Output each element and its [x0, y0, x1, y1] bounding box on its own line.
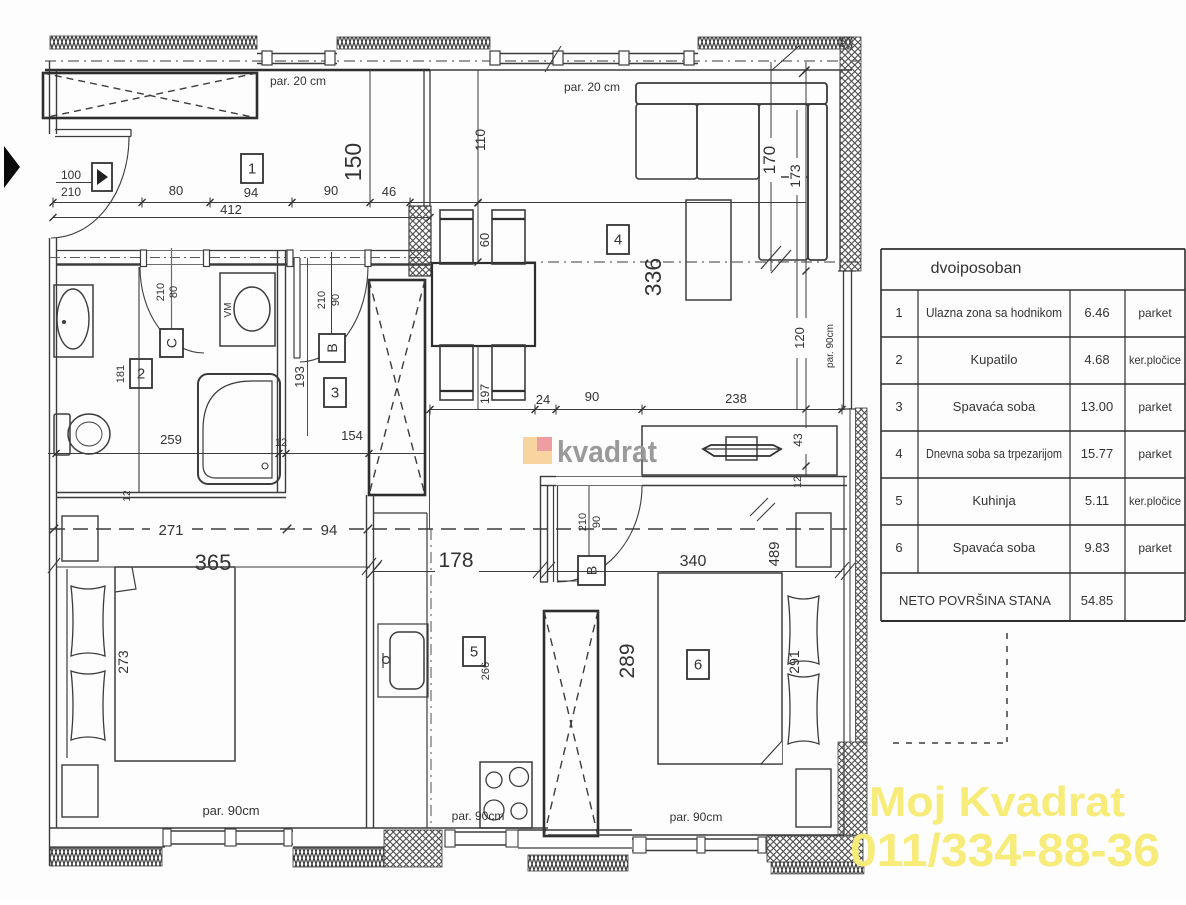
svg-text:B: B	[584, 566, 600, 575]
svg-text:Spavaća soba: Spavaća soba	[953, 399, 1036, 414]
svg-text:par. 90cm: par. 90cm	[452, 809, 505, 823]
svg-text:VM: VM	[223, 303, 234, 318]
svg-text:340: 340	[680, 553, 707, 570]
svg-text:kvadrat: kvadrat	[557, 434, 657, 469]
svg-text:par. 90cm: par. 90cm	[202, 803, 259, 818]
svg-text:94: 94	[244, 185, 258, 200]
svg-text:336: 336	[640, 258, 666, 296]
svg-text:Kupatilo: Kupatilo	[971, 352, 1018, 367]
svg-text:par. 90cm: par. 90cm	[825, 324, 836, 368]
svg-text:5: 5	[895, 493, 902, 508]
svg-text:9.83: 9.83	[1084, 540, 1109, 555]
svg-text:210: 210	[577, 513, 589, 531]
svg-text:15.77: 15.77	[1081, 446, 1114, 461]
svg-text:12: 12	[275, 437, 287, 449]
svg-text:289: 289	[616, 643, 639, 678]
svg-text:90: 90	[591, 516, 603, 528]
svg-text:4: 4	[614, 232, 622, 249]
svg-text:parket: parket	[1138, 541, 1172, 555]
svg-text:489: 489	[766, 541, 783, 566]
svg-text:011/334-88-36: 011/334-88-36	[850, 824, 1160, 876]
svg-text:5.11: 5.11	[1085, 493, 1109, 508]
svg-text:173: 173	[787, 164, 803, 188]
svg-text:90: 90	[324, 183, 338, 198]
svg-text:210: 210	[61, 185, 81, 199]
svg-text:100: 100	[61, 168, 81, 182]
svg-text:5: 5	[470, 644, 478, 661]
svg-text:parket: parket	[1138, 447, 1172, 461]
svg-text:43: 43	[791, 433, 805, 447]
svg-text:80: 80	[169, 183, 183, 198]
svg-text:parket: parket	[1138, 306, 1172, 320]
svg-text:6: 6	[694, 657, 702, 674]
svg-text:412: 412	[220, 202, 242, 217]
svg-text:dvoiposoban: dvoiposoban	[931, 260, 1022, 277]
svg-text:24: 24	[536, 392, 550, 407]
svg-text:110: 110	[472, 129, 488, 152]
svg-text:par. 90cm: par. 90cm	[670, 810, 723, 824]
svg-text:12: 12	[122, 490, 133, 502]
svg-text:154: 154	[341, 428, 363, 443]
svg-text:par. 20 cm: par. 20 cm	[564, 80, 620, 94]
svg-text:94: 94	[321, 522, 338, 539]
svg-text:120: 120	[792, 327, 807, 349]
svg-text:90: 90	[330, 294, 342, 306]
svg-text:Dnevna soba sa trpezarijom: Dnevna soba sa trpezarijom	[926, 446, 1062, 461]
svg-text:1: 1	[248, 161, 256, 178]
svg-text:ker.pločice: ker.pločice	[1129, 494, 1181, 508]
svg-text:3: 3	[331, 385, 339, 402]
svg-text:Ulazna zona sa hodnikom: Ulazna zona sa hodnikom	[926, 305, 1062, 320]
svg-text:1: 1	[895, 305, 902, 320]
svg-text:210: 210	[316, 291, 328, 309]
svg-text:2: 2	[895, 352, 902, 367]
svg-text:6.46: 6.46	[1084, 305, 1109, 320]
svg-text:210: 210	[155, 283, 167, 301]
svg-text:13.00: 13.00	[1081, 399, 1114, 414]
svg-text:12: 12	[792, 476, 804, 488]
svg-text:60: 60	[477, 233, 492, 247]
svg-text:4: 4	[895, 446, 902, 461]
svg-text:193: 193	[292, 366, 307, 388]
svg-text:4.68: 4.68	[1084, 352, 1109, 367]
svg-text:90: 90	[585, 389, 599, 404]
svg-text:54.85: 54.85	[1081, 593, 1114, 608]
svg-text:C: C	[164, 338, 180, 348]
svg-text:178: 178	[438, 549, 473, 572]
svg-text:271: 271	[158, 522, 183, 539]
svg-text:238: 238	[725, 391, 747, 406]
svg-text:266: 266	[480, 662, 492, 680]
svg-text:Spavaća soba: Spavaća soba	[953, 540, 1036, 555]
svg-text:6: 6	[895, 540, 902, 555]
svg-text:273: 273	[115, 650, 131, 674]
svg-text:291: 291	[786, 650, 802, 674]
svg-text:Moj Kvadrat: Moj Kvadrat	[869, 778, 1125, 825]
svg-text:259: 259	[160, 432, 182, 447]
svg-text:181: 181	[115, 365, 127, 383]
svg-text:Kuhinja: Kuhinja	[972, 493, 1016, 508]
svg-text:46: 46	[382, 184, 396, 199]
svg-text:par. 20 cm: par. 20 cm	[270, 74, 326, 88]
svg-text:parket: parket	[1138, 400, 1172, 414]
svg-text:80: 80	[168, 286, 180, 298]
svg-text:150: 150	[340, 143, 366, 181]
svg-text:170: 170	[760, 146, 779, 174]
svg-text:2: 2	[137, 366, 145, 383]
svg-text:197: 197	[478, 384, 492, 404]
svg-text:3: 3	[895, 399, 902, 414]
svg-text:365: 365	[195, 550, 232, 575]
svg-text:ker.pločice: ker.pločice	[1129, 353, 1181, 367]
svg-text:NETO POVRŠINA STANA: NETO POVRŠINA STANA	[899, 593, 1051, 608]
svg-text:B: B	[324, 343, 340, 352]
